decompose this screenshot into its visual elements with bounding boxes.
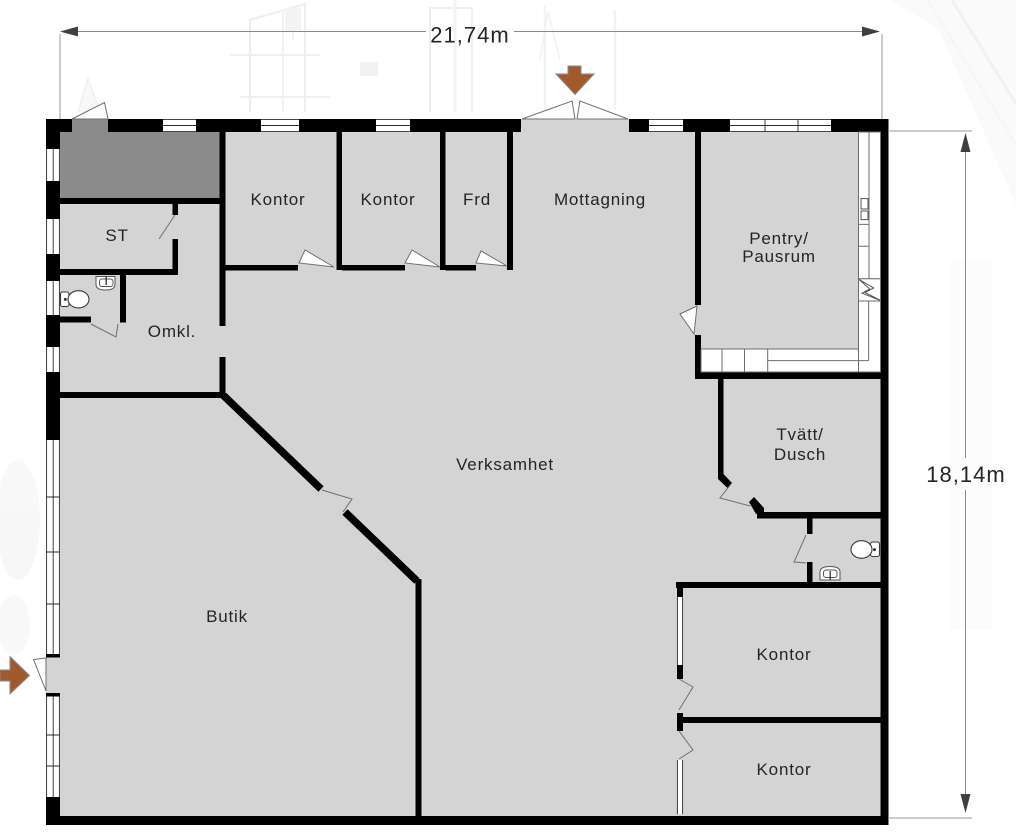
svg-text:Kontor: Kontor: [251, 190, 306, 209]
svg-text:Kontor: Kontor: [757, 645, 812, 664]
svg-text:Butik: Butik: [206, 607, 248, 626]
svg-text:Kontor: Kontor: [757, 760, 812, 779]
svg-text:21,74m: 21,74m: [430, 23, 509, 48]
svg-text:Frd: Frd: [463, 190, 491, 209]
svg-text:Mottagning: Mottagning: [554, 190, 646, 209]
svg-text:Omkl.: Omkl.: [148, 322, 196, 341]
svg-text:ST: ST: [105, 226, 128, 245]
svg-text:Dusch: Dusch: [774, 445, 826, 464]
svg-text:Pausrum: Pausrum: [742, 247, 816, 266]
svg-text:Tvätt/: Tvätt/: [776, 425, 823, 444]
svg-text:Kontor: Kontor: [361, 190, 416, 209]
svg-text:Pentry/: Pentry/: [749, 229, 808, 248]
svg-text:Verksamhet: Verksamhet: [456, 455, 554, 474]
svg-text:18,14m: 18,14m: [926, 462, 1005, 487]
